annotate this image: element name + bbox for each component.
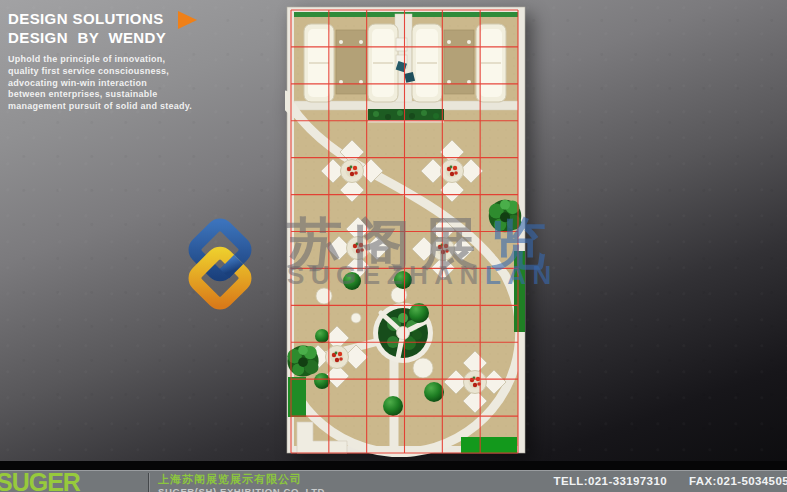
description-text: Uphold the principle of innovation, qual… bbox=[8, 54, 258, 113]
couch bbox=[304, 24, 334, 102]
title-line-1: DESIGN SOLUTIONS bbox=[8, 9, 258, 28]
description-line: advocating win-win interaction bbox=[8, 78, 258, 90]
footer-brand-logo: SUGER bbox=[0, 470, 80, 492]
footer-contact: TELL:021-33197310FAX:021-5034505 bbox=[553, 475, 787, 487]
potted-plant bbox=[287, 345, 318, 376]
description-line: management pursuit of solid and steady. bbox=[8, 101, 258, 113]
partition-table bbox=[444, 30, 474, 94]
header-block: DESIGN SOLUTIONS DESIGN BY WENDY Uphold … bbox=[8, 9, 258, 113]
top-rooms bbox=[294, 14, 518, 110]
description-line: Uphold the principle of innovation, bbox=[8, 54, 258, 66]
footer-company: 上海苏阁展览展示有限公司 SUGER(SH) EXHIBITION CO.,LT… bbox=[158, 473, 325, 492]
suger-logo-icon bbox=[168, 212, 272, 316]
footer-divider bbox=[148, 473, 149, 492]
green-wall-strip bbox=[514, 251, 525, 332]
company-name-en: SUGER(SH) EXHIBITION CO.,LTD bbox=[158, 486, 325, 492]
orange-arrow-icon bbox=[178, 11, 197, 29]
description-line: quality first service consciousness, bbox=[8, 66, 258, 78]
couch bbox=[368, 24, 398, 102]
description-line: between enterprises, sustainable bbox=[8, 89, 258, 101]
fax-number: FAX:021-5034505 bbox=[689, 475, 787, 487]
footer-bar: SUGER 上海苏阁展览展示有限公司 SUGER(SH) EXHIBITION … bbox=[0, 470, 787, 492]
potted-plant bbox=[489, 200, 522, 233]
floor-plan bbox=[285, 5, 529, 457]
couch bbox=[412, 24, 442, 102]
tel-number: TELL:021-33197310 bbox=[553, 475, 667, 487]
green-carpet bbox=[461, 437, 517, 453]
partition-table bbox=[336, 30, 366, 94]
company-name-cn: 上海苏阁展览展示有限公司 bbox=[158, 473, 325, 486]
title-line-2: DESIGN BY WENDY bbox=[8, 28, 258, 47]
design-presentation-board: DESIGN SOLUTIONS DESIGN BY WENDY Uphold … bbox=[0, 0, 787, 492]
